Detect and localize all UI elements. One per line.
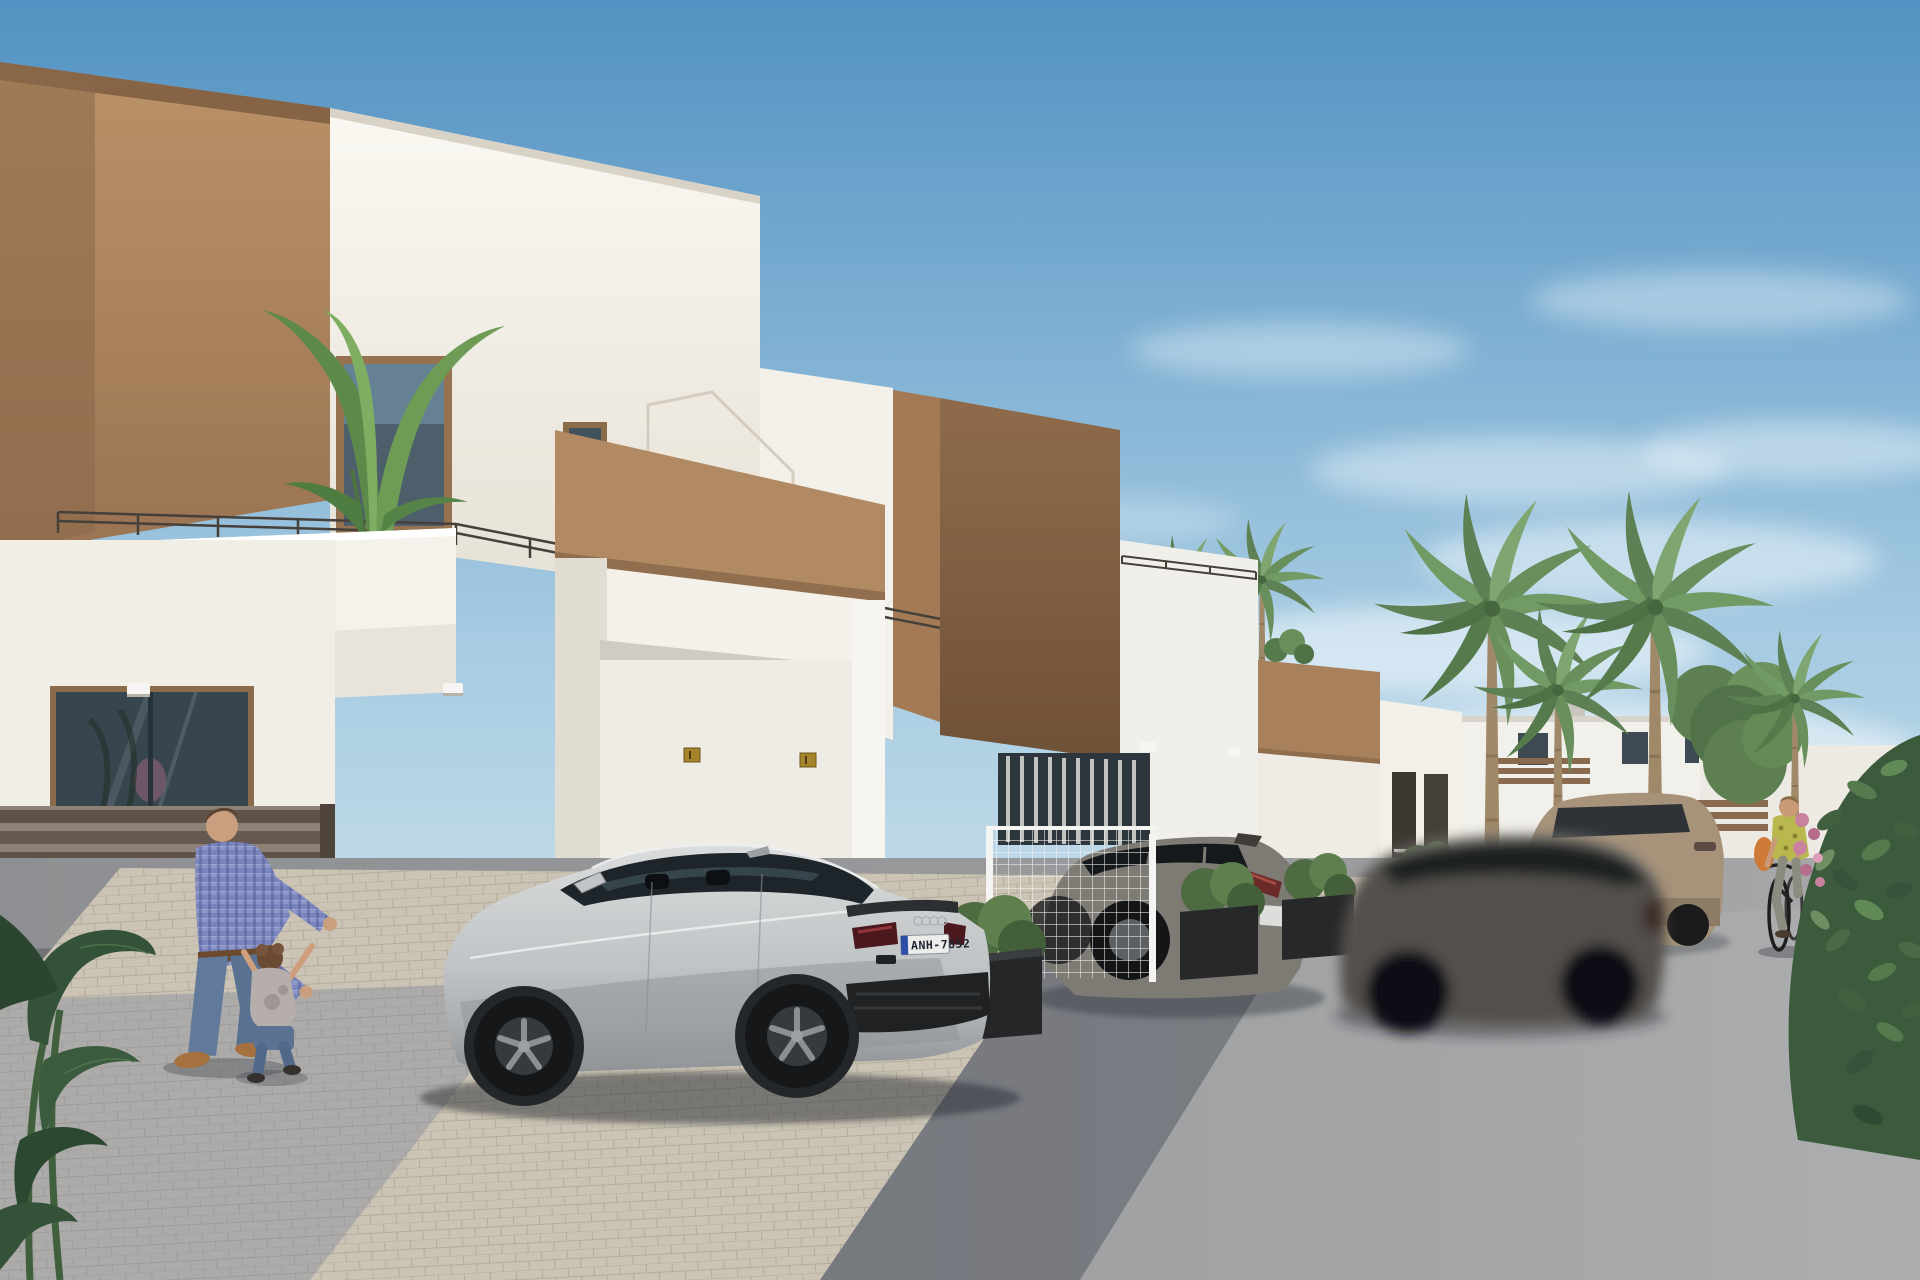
architectural-render: ANH-7852	[0, 0, 1920, 1280]
house-number-plaque	[800, 753, 816, 767]
brown-accent-panel	[940, 398, 1120, 760]
street-render-scene: ANH-7852	[0, 0, 1920, 1280]
garage	[555, 430, 885, 885]
taillight	[1694, 842, 1716, 851]
headrest	[645, 873, 670, 889]
planter	[1180, 862, 1265, 980]
house-number-plaque	[684, 748, 700, 762]
window	[1622, 732, 1648, 764]
license-plate-text: ANH-7852	[911, 936, 971, 952]
headrest	[706, 869, 731, 885]
brown-corner-band	[893, 390, 940, 722]
front-wheel	[474, 996, 574, 1096]
rear-wheel	[745, 984, 849, 1088]
model-badge	[876, 955, 896, 964]
brown-parapet	[1258, 660, 1380, 764]
moving-car-blurred	[1335, 836, 1665, 1037]
